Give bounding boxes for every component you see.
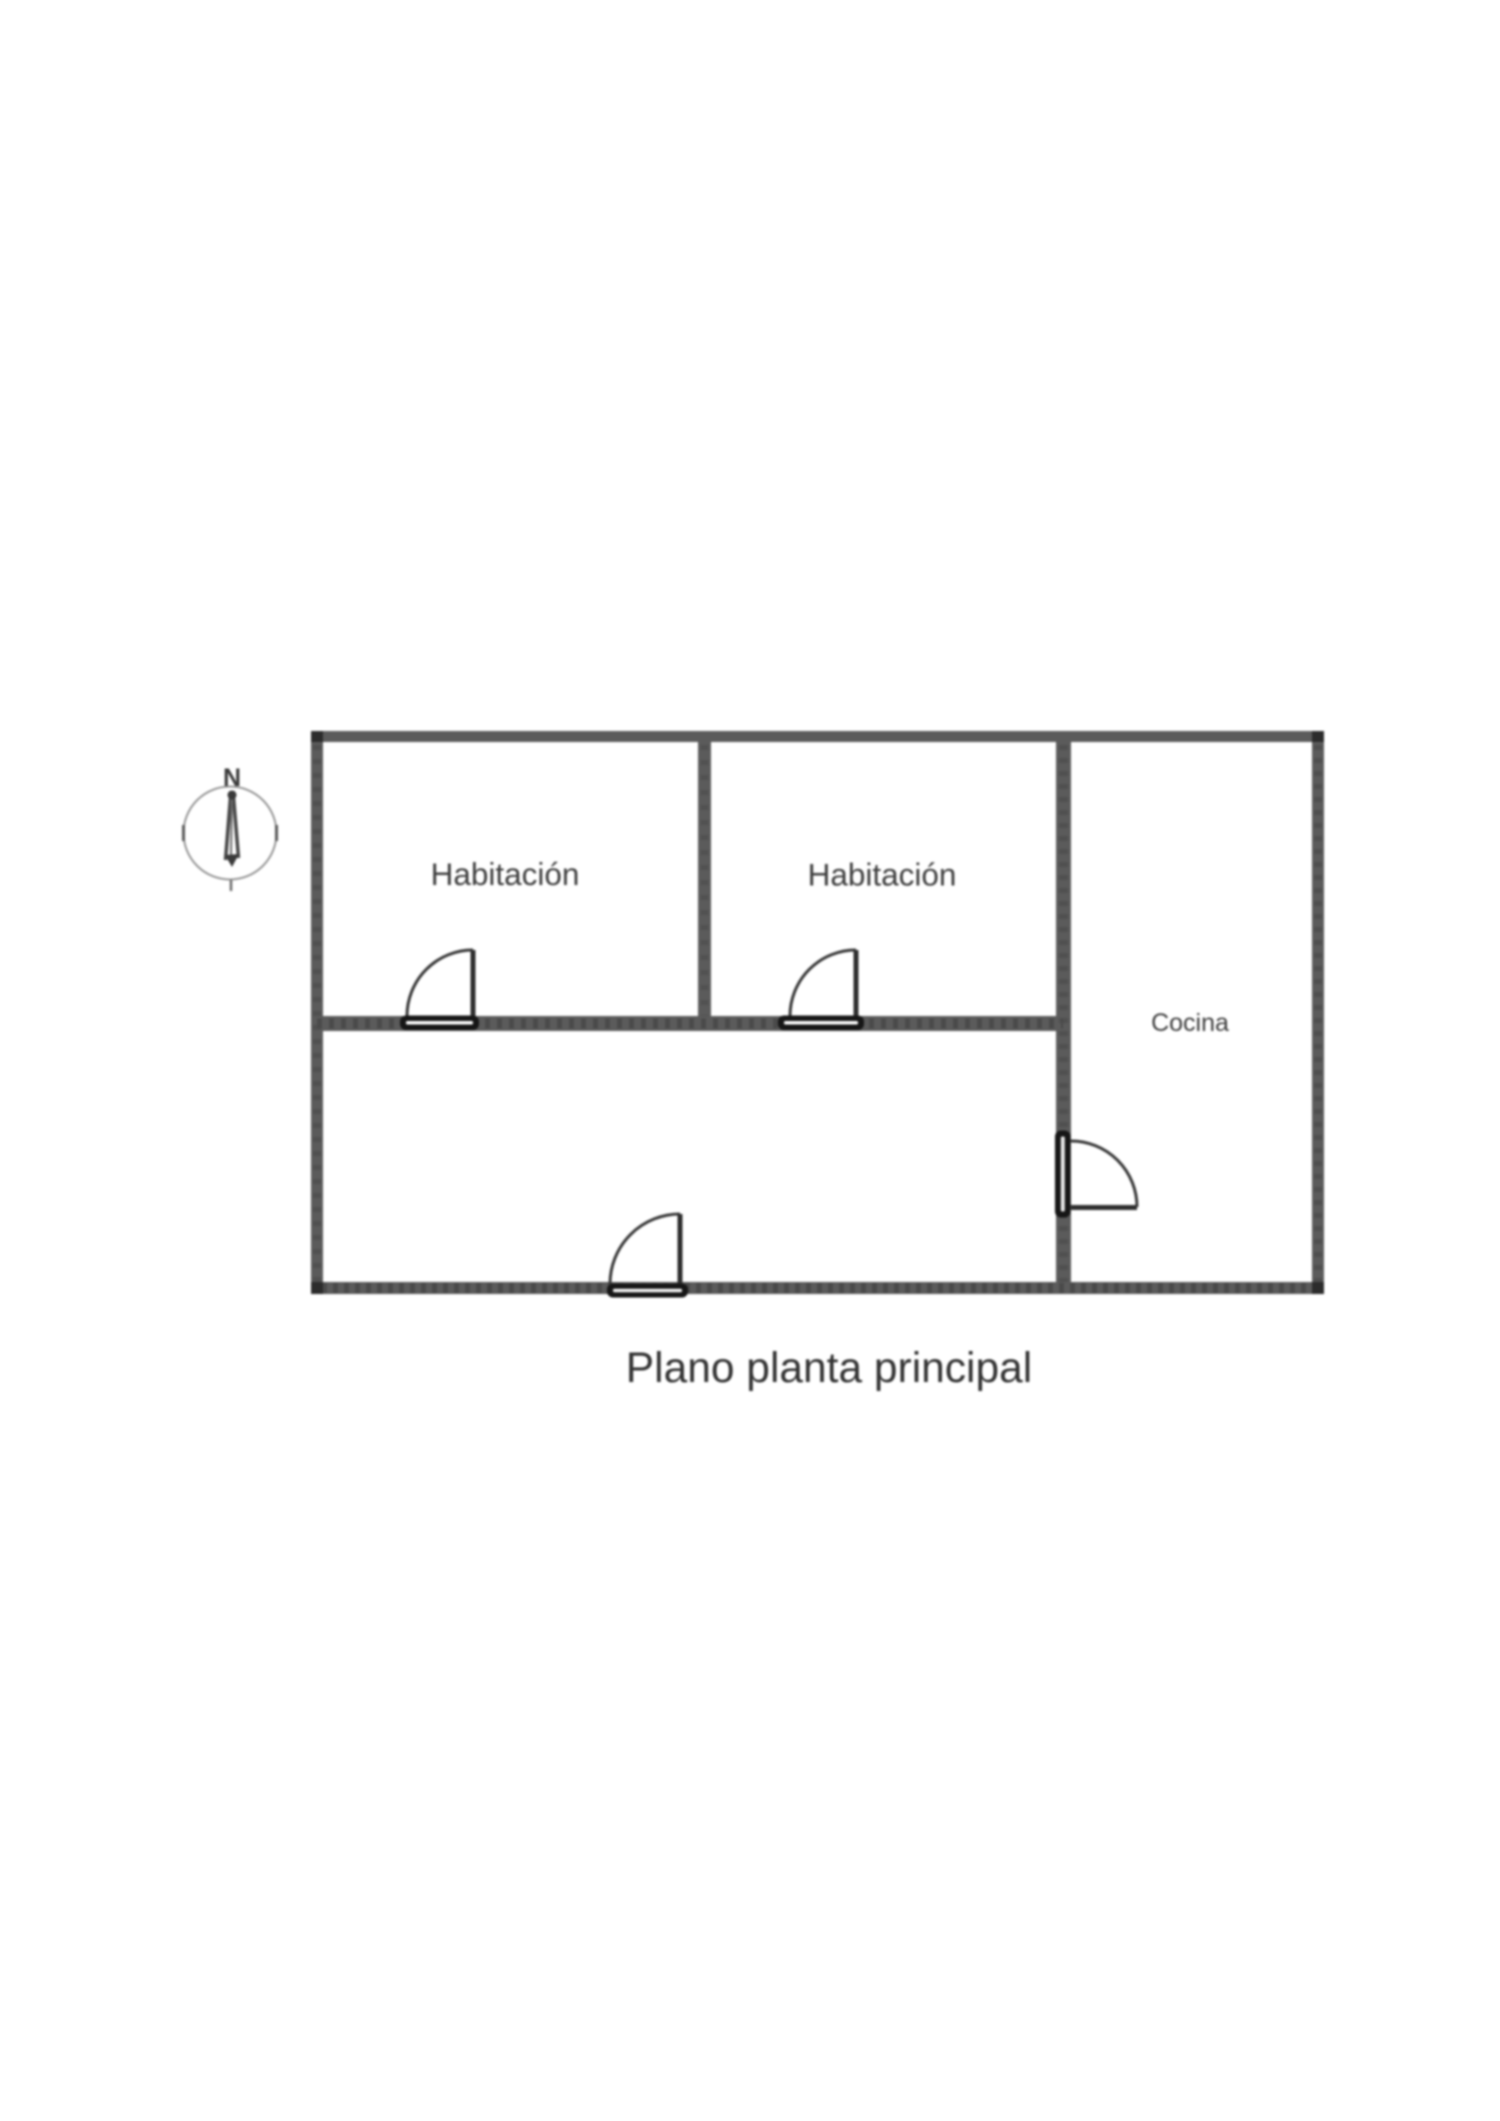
svg-text:Habitación: Habitación <box>431 856 580 892</box>
svg-text:Cocina: Cocina <box>1151 1009 1229 1037</box>
svg-text:N: N <box>223 764 241 792</box>
svg-text:Habitación: Habitación <box>808 857 957 893</box>
svg-text:Plano planta principal: Plano planta principal <box>626 1345 1032 1392</box>
